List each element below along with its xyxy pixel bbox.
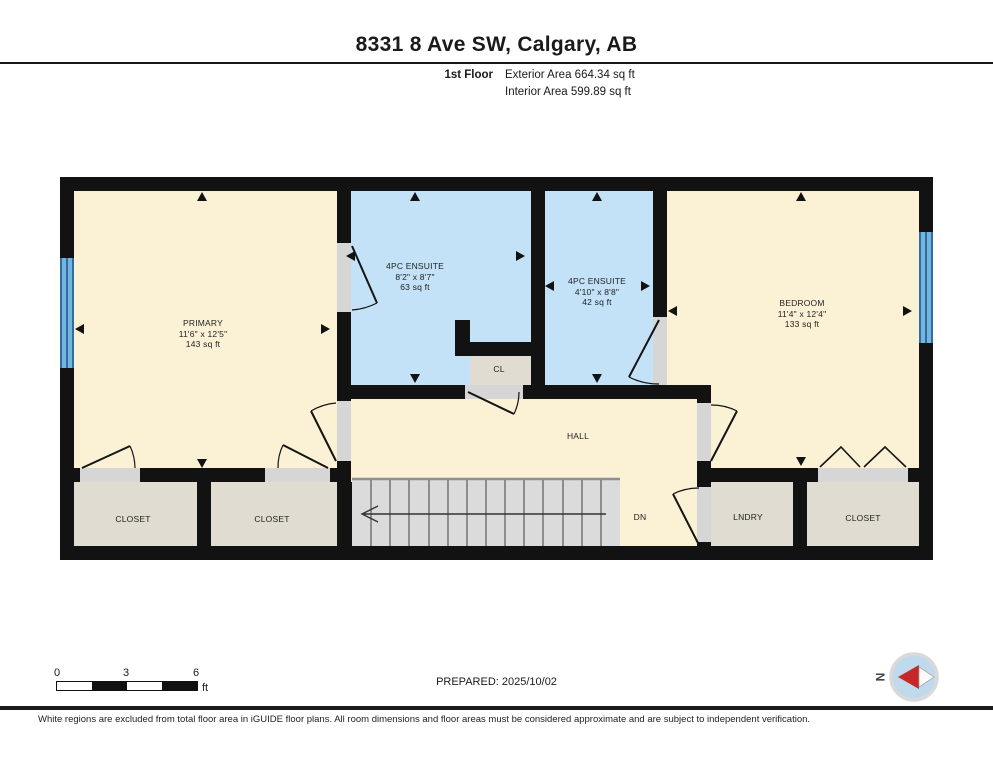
room-dims: 11'6" x 12'5" (143, 329, 263, 340)
wall (908, 468, 919, 482)
prepared-date: PREPARED: 2025/10/02 (0, 676, 993, 688)
page-title: 8331 8 Ave SW, Calgary, AB (0, 33, 993, 57)
room-name: CLOSET (815, 513, 911, 524)
room-area: 42 sq ft (537, 297, 657, 308)
dimension-arrow-right (903, 306, 912, 316)
wall (60, 177, 933, 191)
room-label-bedroom: BEDROOM 11'4" x 12'4" 133 sq ft (742, 298, 862, 330)
room-label-closet-mid: CLOSET (224, 514, 320, 525)
door-opening (818, 468, 908, 482)
room-area: 143 sq ft (143, 339, 263, 350)
exterior-area-text: Exterior Area 664.34 sq ft (505, 69, 635, 81)
room-name: CL (469, 364, 529, 375)
room-dims: 11'4" x 12'4" (742, 309, 862, 320)
door-opening (653, 317, 667, 385)
room-dims: 8'2" x 8'7" (355, 272, 475, 283)
room-label-hall: HALL (538, 431, 618, 442)
dimension-arrow-up (592, 192, 602, 201)
title-divider (0, 62, 993, 64)
dimension-arrow-left (346, 251, 355, 261)
dimension-arrow-down (197, 459, 207, 468)
dimension-arrow-down (592, 374, 602, 383)
room-label-laundry: LNDRY (703, 512, 793, 523)
room-label-ensuite-1: 4PC ENSUITE 8'2" x 8'7" 63 sq ft (355, 261, 475, 293)
wall (337, 312, 351, 401)
door-opening (80, 468, 140, 482)
wall (455, 342, 531, 356)
dimension-arrow-left (75, 324, 84, 334)
wall (337, 482, 352, 546)
wall (140, 468, 265, 482)
wall (197, 482, 211, 546)
room-dims: 4'10" x 8'8" (537, 287, 657, 298)
wall (697, 542, 711, 546)
room-label-primary: PRIMARY 11'6" x 12'5" 143 sq ft (143, 318, 263, 350)
door-opening (465, 385, 523, 399)
room-area: 133 sq ft (742, 319, 862, 330)
door-opening (697, 403, 711, 461)
room-name: 4PC ENSUITE (537, 276, 657, 287)
wall (531, 385, 711, 399)
room-name: CLOSET (85, 514, 181, 525)
dimension-arrow-right (321, 324, 330, 334)
wall (330, 468, 351, 482)
dimension-arrow-left (668, 306, 677, 316)
disclaimer-text: White regions are excluded from total fl… (38, 714, 968, 725)
wall (60, 177, 74, 560)
dimension-arrow-down (796, 457, 806, 466)
door-opening (265, 468, 330, 482)
room-label-cl: CL (469, 364, 529, 375)
floor-plan-page: 8331 8 Ave SW, Calgary, AB 1st Floor Ext… (0, 0, 993, 768)
room-area: 63 sq ft (355, 282, 475, 293)
dimension-arrow-up (197, 192, 207, 201)
door-opening (337, 401, 351, 461)
wall (60, 546, 933, 560)
window (60, 258, 74, 368)
room-label-ensuite-2: 4PC ENSUITE 4'10" x 8'8" 42 sq ft (537, 276, 657, 308)
room-name: PRIMARY (143, 318, 263, 329)
dimension-arrow-right (516, 251, 525, 261)
dimension-arrow-up (796, 192, 806, 201)
stairs-down-label: DN (627, 512, 653, 523)
floor-label: 1st Floor (340, 69, 493, 81)
room-name: HALL (538, 431, 618, 442)
stairs-area (352, 480, 620, 546)
room-label-closet-left: CLOSET (85, 514, 181, 525)
wall (337, 191, 351, 243)
room-name: BEDROOM (742, 298, 862, 309)
dimension-arrow-up (410, 192, 420, 201)
window (919, 232, 933, 343)
room-name: LNDRY (703, 512, 793, 523)
wall (351, 385, 465, 399)
room-label-closet-right: CLOSET (815, 513, 911, 524)
compass-north-label: N (873, 673, 887, 682)
wall (697, 468, 818, 482)
interior-area-text: Interior Area 599.89 sq ft (505, 86, 631, 98)
wall (523, 385, 531, 399)
room-name: CLOSET (224, 514, 320, 525)
room-name: 4PC ENSUITE (355, 261, 475, 272)
dimension-arrow-down (410, 374, 420, 383)
wall (793, 482, 807, 546)
footer-divider (0, 706, 993, 710)
